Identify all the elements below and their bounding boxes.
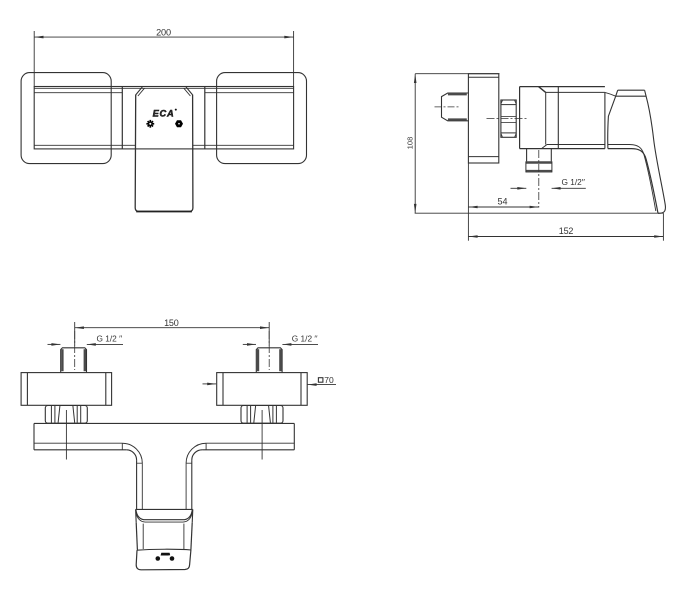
svg-text:ECA: ECA xyxy=(153,108,175,118)
svg-text:152: 152 xyxy=(559,226,574,236)
svg-text:200: 200 xyxy=(156,28,171,38)
svg-text:150: 150 xyxy=(164,318,179,328)
svg-text:G 1/2 ′′: G 1/2 ′′ xyxy=(292,334,318,344)
svg-text:G 1/2 ′′: G 1/2 ′′ xyxy=(97,334,123,344)
svg-text:70: 70 xyxy=(324,375,334,385)
svg-text:108: 108 xyxy=(405,137,414,150)
svg-text:54: 54 xyxy=(497,197,507,207)
svg-text:G 1/2′′: G 1/2′′ xyxy=(562,177,586,187)
